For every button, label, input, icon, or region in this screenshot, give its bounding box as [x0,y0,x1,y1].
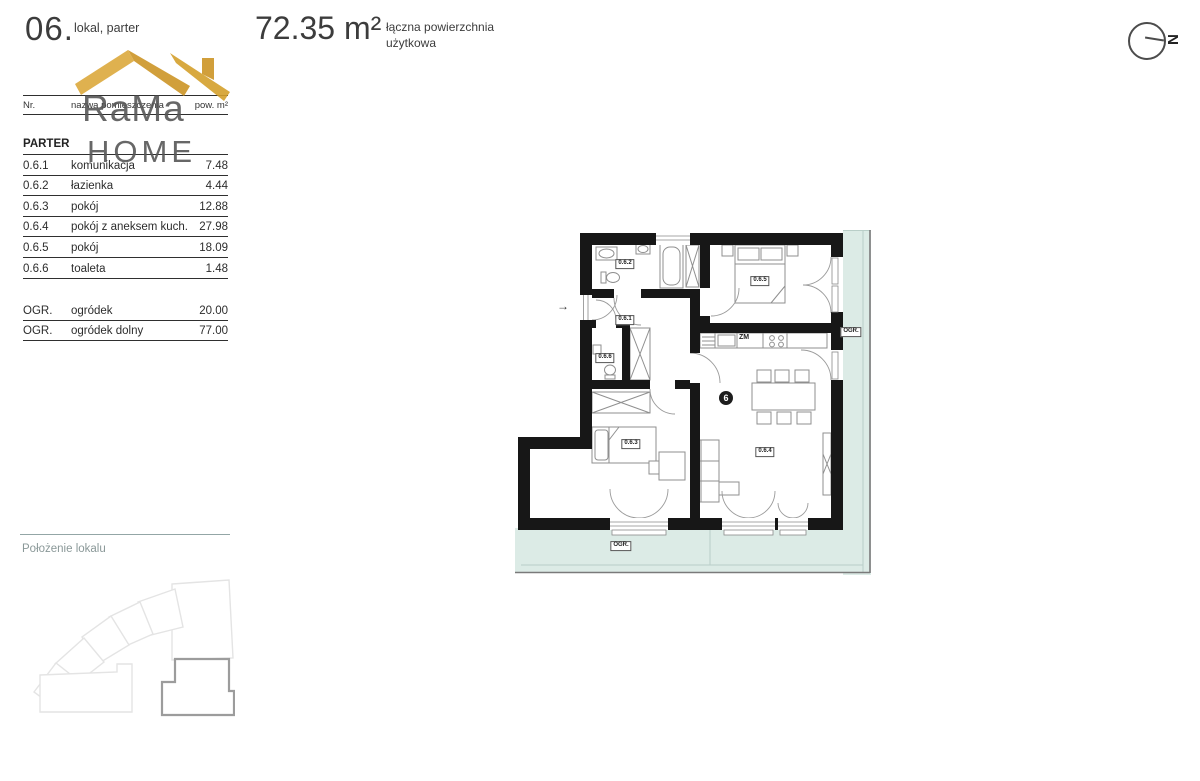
total-area-label: łączna powierzchnia użytkowa [386,20,494,51]
total-area-label-line2: użytkowa [386,36,494,52]
table-row: 0.6.4 pokój z aneksem kuch. 27.98 [23,217,228,238]
floor-plan: 0.6.1 0.6.2 0.6.3 0.6.4 0.6.5 0.6.6 OGR.… [513,228,875,577]
garden-label-bottom: OGR. [610,541,631,551]
row-area: 20.00 [199,305,228,317]
row-nr: 0.6.4 [23,221,71,233]
entry-arrow-icon: → [557,299,569,313]
table-row: OGR. ogródek 20.00 [23,300,228,321]
row-nr: OGR. [23,325,71,337]
row-nr: 0.6.3 [23,201,71,213]
row-area: 4.44 [206,180,228,192]
room-label-living: 0.6.4 [755,447,774,457]
row-area: 27.98 [199,221,228,233]
row-name: pokój [71,242,199,254]
row-nr: 0.6.6 [23,263,71,275]
logo-text-rama: RaMa [82,88,185,130]
row-nr: 0.6.5 [23,242,71,254]
total-area-label-line1: łączna powierzchnia [386,20,494,36]
row-area: 77.00 [199,325,228,337]
row-name: pokój z aneksem kuch. [71,221,199,233]
table-row: 0.6.2 łazienka 4.44 [23,176,228,197]
row-name: ogródek [71,305,199,317]
row-area: 1.48 [206,263,228,275]
logo-text-home: HOME [87,134,196,170]
room-label-bathroom: 0.6.2 [615,259,634,269]
room-label-hall: 0.6.1 [615,315,634,325]
row-nr: 0.6.2 [23,180,71,192]
row-name: ogródek dolny [71,325,199,337]
table-row: OGR. ogródek dolny 77.00 [23,321,228,342]
room-table-rows: 0.6.1 komunikacja 7.48 0.6.2 łazienka 4.… [23,155,228,279]
row-name: toaleta [71,263,206,275]
garden-label-right: OGR. [840,327,861,337]
building-outline-map [20,572,235,772]
room-label-bedroom: 0.6.5 [750,276,769,286]
floor-plan-page: 06. lokal, parter 72.35 m² łączna powier… [0,0,1200,781]
table-row: 0.6.6 toaleta 1.48 [23,258,228,279]
row-name: łazienka [71,180,206,192]
total-area-value: 72.35 m² [255,10,381,47]
row-name: pokój [71,201,199,213]
room-label-room3: 0.6.3 [621,439,640,449]
room-label-toilet: 0.6.6 [595,353,614,363]
highlighted-unit-outline [162,659,234,715]
floor-plan-drawing [513,228,875,577]
row-nr: OGR. [23,305,71,317]
location-title: Położenie lokalu [22,543,106,555]
location-divider [20,534,230,535]
location-minimap [20,572,235,777]
garden-table-rows: OGR. ogródek 20.00 OGR. ogródek dolny 77… [23,300,228,341]
row-area: 12.88 [199,201,228,213]
table-row: 0.6.3 pokój 12.88 [23,196,228,217]
table-row: 0.6.5 pokój 18.09 [23,237,228,258]
unit-marker: 6 [719,391,733,405]
unit-type-label: lokal, parter [74,21,139,35]
dishwasher-label: ZM [739,334,749,341]
compass-north-label: N [1164,34,1181,45]
row-area: 18.09 [199,242,228,254]
company-logo: RaMa HOME [60,38,245,173]
